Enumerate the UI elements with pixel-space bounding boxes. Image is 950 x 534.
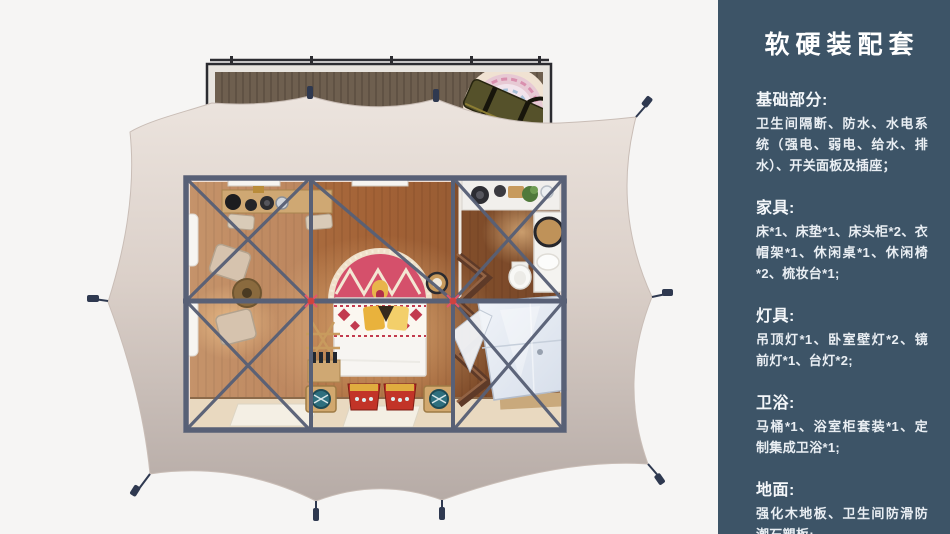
section-furniture: 家具: 床*1、床垫*1、床头柜*2、衣帽架*1、休闲桌*1、休闲椅*2、梳妆台… bbox=[756, 194, 928, 284]
bathroom-vanity bbox=[534, 212, 566, 292]
section-heading: 灯具: bbox=[756, 302, 928, 326]
section-body: 床*1、床垫*1、床头柜*2、衣帽架*1、休闲桌*1、休闲椅*2、梳妆台*1; bbox=[756, 221, 928, 284]
toilet bbox=[509, 262, 531, 289]
section-lighting: 灯具: 吊顶灯*1、卧室壁灯*2、镜前灯*1、台灯*2; bbox=[756, 302, 928, 371]
section-body: 强化木地板、卫生间防滑防潮石塑板; bbox=[756, 503, 928, 534]
spec-sidebar: 软硬装配套 基础部分: 卫生间隔断、防水、水电系统（强电、弱电、给水、排水）、开… bbox=[718, 0, 950, 534]
floorplan-panel bbox=[0, 0, 718, 534]
section-heading: 地面: bbox=[756, 476, 928, 500]
section-body: 卫生间隔断、防水、水电系统（强电、弱电、给水、排水）、开关面板及插座； bbox=[756, 113, 928, 176]
section-heading: 卫浴: bbox=[756, 389, 928, 413]
section-flooring: 地面: 强化木地板、卫生间防滑防潮石塑板; bbox=[756, 476, 928, 534]
section-body: 吊顶灯*1、卧室壁灯*2、镜前灯*1、台灯*2; bbox=[756, 329, 928, 371]
section-heading: 基础部分: bbox=[756, 86, 928, 110]
sidebar-title: 软硬装配套 bbox=[756, 30, 928, 60]
tent-floorplan-top-view bbox=[0, 0, 718, 534]
section-bathroom: 卫浴: 马桶*1、浴室柜套装*1、定制集成卫浴*1; bbox=[756, 389, 928, 458]
vanity-mirror bbox=[535, 218, 563, 246]
wash-basin bbox=[537, 254, 559, 270]
section-heading: 家具: bbox=[756, 194, 928, 218]
page: 软硬装配套 基础部分: 卫生间隔断、防水、水电系统（强电、弱电、给水、排水）、开… bbox=[0, 0, 950, 534]
bed bbox=[328, 248, 432, 376]
section-basics: 基础部分: 卫生间隔断、防水、水电系统（强电、弱电、给水、排水）、开关面板及插座… bbox=[756, 86, 928, 176]
section-body: 马桶*1、浴室柜套装*1、定制集成卫浴*1; bbox=[756, 416, 928, 458]
